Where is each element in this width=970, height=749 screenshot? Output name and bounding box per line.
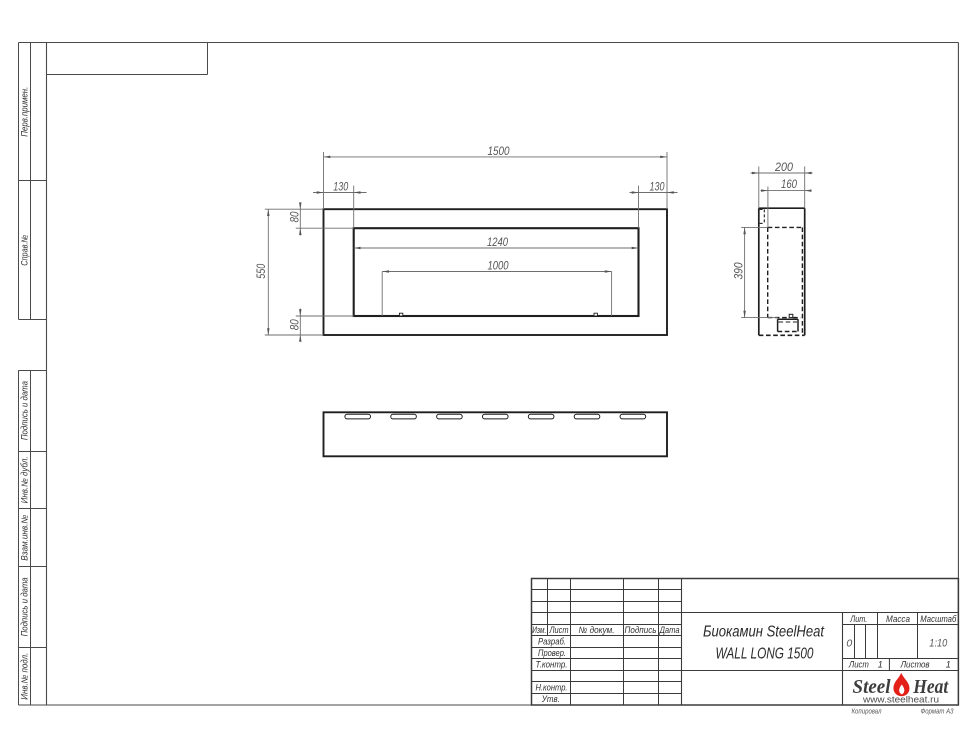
svg-text:Лист: Лист (549, 625, 569, 635)
svg-text:Подпись и дата: Подпись и дата (19, 577, 29, 636)
svg-text:1: 1 (946, 660, 951, 670)
svg-text:Утв.: Утв. (541, 694, 560, 704)
svg-text:Лист: Лист (848, 660, 869, 670)
svg-text:Справ.№: Справ.№ (19, 235, 29, 266)
svg-text:Формат А3: Формат А3 (921, 707, 955, 716)
svg-text:0: 0 (846, 638, 852, 650)
svg-text:№ докум.: № докум. (579, 625, 615, 635)
svg-text:160: 160 (781, 177, 797, 191)
svg-text:Листов: Листов (900, 660, 930, 670)
svg-text:130: 130 (650, 180, 665, 194)
svg-text:www.steelheat.ru: www.steelheat.ru (862, 693, 939, 704)
svg-text:200: 200 (774, 160, 793, 174)
svg-text:Масштаб: Масштаб (920, 614, 957, 624)
svg-text:Лит.: Лит. (849, 614, 867, 624)
svg-text:WALL LONG 1500: WALL LONG 1500 (716, 645, 814, 662)
svg-text:Подпись: Подпись (625, 625, 657, 635)
svg-text:Инв.№ подл.: Инв.№ подл. (19, 653, 29, 700)
svg-text:Дата: Дата (659, 625, 680, 635)
svg-text:550: 550 (254, 263, 268, 278)
svg-text:Взам.инв.№: Взам.инв.№ (19, 515, 29, 561)
svg-text:Провер.: Провер. (538, 648, 566, 658)
svg-text:Инв.№ дубл.: Инв.№ дубл. (19, 456, 29, 503)
svg-text:1: 1 (878, 660, 883, 670)
svg-text:Копировал: Копировал (852, 707, 883, 716)
svg-text:1:10: 1:10 (929, 637, 948, 649)
svg-text:Биокамин SteelHeat: Биокамин SteelHeat (703, 623, 824, 640)
svg-text:390: 390 (732, 262, 746, 279)
svg-text:80: 80 (287, 211, 301, 222)
svg-text:Разраб.: Разраб. (538, 637, 566, 647)
svg-text:Изм.: Изм. (532, 625, 546, 635)
svg-text:1240: 1240 (487, 235, 508, 249)
svg-text:Подпись и дата: Подпись и дата (19, 381, 29, 440)
svg-text:1500: 1500 (488, 144, 510, 158)
svg-text:Перв.примен.: Перв.примен. (19, 87, 29, 137)
svg-text:130: 130 (333, 180, 348, 194)
svg-text:Масса: Масса (886, 614, 910, 624)
svg-text:Т.контр.: Т.контр. (536, 660, 568, 670)
svg-text:1000: 1000 (488, 259, 509, 273)
svg-text:Н.контр.: Н.контр. (536, 683, 568, 693)
svg-text:80: 80 (287, 319, 301, 330)
